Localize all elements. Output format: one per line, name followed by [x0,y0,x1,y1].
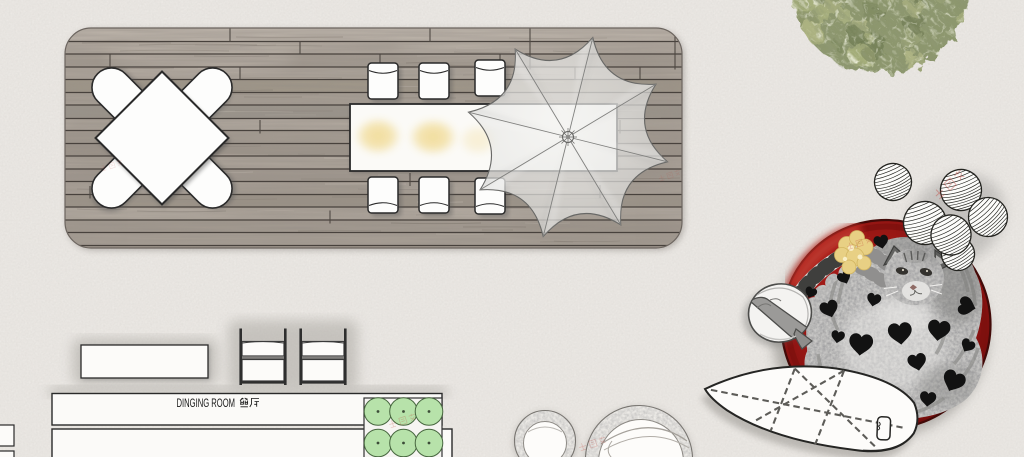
svg-text:DINGING ROOM: DINGING ROOM [177,396,236,410]
